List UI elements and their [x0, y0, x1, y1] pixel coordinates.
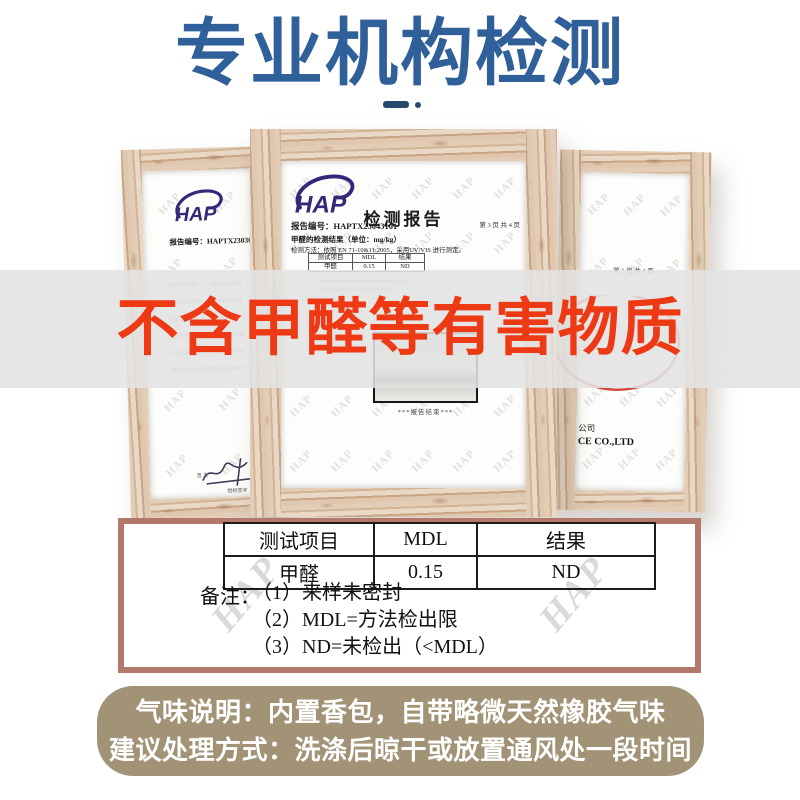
- logo-text: HAP: [175, 203, 218, 226]
- gray-overlay-band: 不含甲醛等有害物质: [0, 270, 800, 388]
- table-header-cell: 测试项目: [224, 523, 374, 556]
- note-line: （1）来样未密封: [252, 580, 498, 607]
- company-name-cn: 公司: [578, 422, 595, 434]
- sign-label: 签 发: [197, 472, 208, 479]
- title-underline-dash: [383, 101, 409, 108]
- table-header-cell: MDL: [374, 523, 477, 556]
- table-header-cell: 结果: [477, 523, 655, 556]
- footer-panel: 气味说明：内置香包，自带略微天然橡胶气味 建议处理方式：洗涤后晾干或放置通风处一…: [97, 686, 704, 776]
- note-line: （2）MDL=方法检出限: [252, 607, 498, 634]
- banner-text: 不含甲醛等有害物质: [0, 298, 800, 360]
- page-title: 专业机构检测: [0, 12, 800, 96]
- product-detail-image: 专业机构检测 HAPHAPHAPHAPHAPHAPHAPHAPHAPHAP HA…: [0, 0, 800, 800]
- mini-header-cell: MDL: [353, 254, 386, 263]
- report-number: 报告编号：HAPTX23043101: [291, 220, 397, 232]
- note-line: （3）ND=未检出（<MDL）: [252, 634, 498, 661]
- table-cell: ND: [477, 556, 655, 589]
- result-box: HAP HAP 测试项目 MDL 结果 甲醛 0.15 ND 备注： （1）来样…: [118, 518, 701, 673]
- mini-header-cell: 测试项目: [309, 254, 353, 263]
- footer-line2: 建议处理方式：洗涤后晾干或放置通风处一段时间: [109, 731, 692, 769]
- notes-list: （1）来样未密封 （2）MDL=方法检出限 （3）ND=未检出（<MDL）: [252, 580, 498, 661]
- wood-frame-top: [560, 150, 711, 175]
- title-underline-dot: [415, 102, 421, 108]
- notes-label: 备注：: [200, 580, 260, 609]
- hap-logo: HAP: [171, 186, 224, 227]
- wood-frame-bottom: [554, 490, 705, 513]
- wood-frame-bottom: [250, 488, 557, 517]
- company-name-en: CE CO.,LTD: [578, 436, 634, 448]
- wood-frame-top: [250, 129, 557, 161]
- footer-line1: 气味说明：内置香包，自带略微天然橡胶气味: [135, 693, 665, 731]
- sign-sub-label: 授权签字: [227, 487, 247, 495]
- photo-caption: ***报告结束***: [373, 406, 478, 416]
- page-indicator: 第 3 页 共 4 页: [479, 219, 520, 229]
- mini-header-cell: 结果: [386, 254, 425, 263]
